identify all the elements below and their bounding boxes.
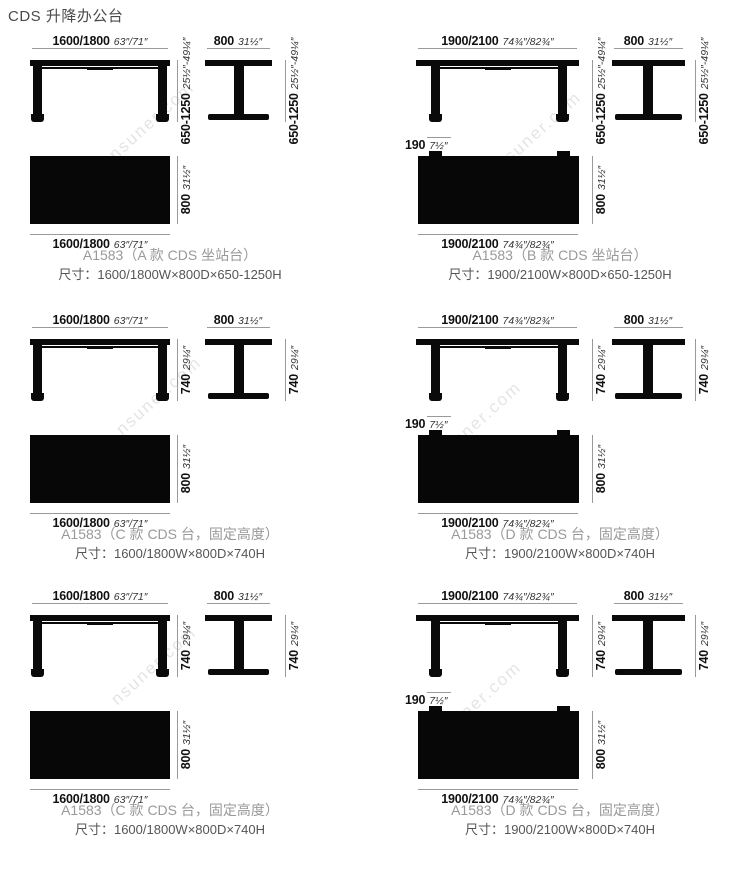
dimension-line bbox=[177, 156, 178, 224]
control-box bbox=[87, 622, 113, 625]
front-width-label: 1900/210074¾″/82¾″ bbox=[416, 589, 579, 602]
desk-leg-left bbox=[33, 66, 42, 116]
height-mm: 650-1250 bbox=[697, 93, 711, 144]
desk-leg-right bbox=[158, 345, 167, 395]
size-spec: 尺寸：1900/2100W×800D×650-1250H bbox=[410, 267, 710, 282]
dimension-line bbox=[427, 692, 451, 693]
desk-leg-left bbox=[431, 621, 440, 671]
panel-a-sit-stand: 1600/180063″/71″ 650-125025½″-49¼″ 80031… bbox=[30, 34, 375, 290]
overhang-mm: 190 bbox=[405, 138, 425, 152]
height-inches: 29¼″ bbox=[289, 622, 301, 646]
height-inches: 25½″-49¼″ bbox=[699, 37, 711, 89]
control-box bbox=[485, 346, 511, 349]
depth-label: 80031½″ bbox=[603, 589, 693, 602]
plan-leg-tab-left bbox=[429, 151, 442, 157]
front-width-label: 1900/210074¾″/82¾″ bbox=[416, 313, 579, 326]
height-inches: 29¼″ bbox=[699, 622, 711, 646]
dimension-line bbox=[592, 156, 593, 224]
desk-leg-right bbox=[558, 66, 567, 116]
depth-mm: 800 bbox=[179, 749, 193, 769]
desk-foot-left bbox=[31, 114, 44, 122]
height-inches: 29¼″ bbox=[699, 346, 711, 370]
dimension-line bbox=[418, 48, 577, 49]
depth-mm: 800 bbox=[624, 34, 644, 48]
panel-c-fixed: 1600/180063″/71″ 74029¼″ 80031½″ 74029¼″… bbox=[30, 313, 375, 569]
depth-inches: 31½″ bbox=[596, 721, 608, 745]
model-caption: A1583（D 款 CDS 台，固定高度） bbox=[410, 802, 710, 818]
dimension-line bbox=[30, 513, 170, 514]
desk-foot-right bbox=[156, 393, 169, 401]
size-spec: 尺寸：1900/2100W×800D×740H bbox=[410, 822, 710, 837]
height-mm: 740 bbox=[594, 374, 608, 394]
plan-leg-tab-left bbox=[429, 706, 442, 712]
depth-inches: 31½″ bbox=[648, 36, 672, 48]
height-inches: 25½″-49¼″ bbox=[181, 37, 193, 89]
size-spec: 尺寸：1600/1800W×800D×740H bbox=[20, 546, 320, 561]
desk-plan-view bbox=[418, 435, 579, 503]
height-inches: 29¼″ bbox=[181, 346, 193, 370]
width-mm: 1600/1800 bbox=[52, 313, 109, 327]
page-title: CDS 升降办公台 bbox=[8, 5, 123, 26]
depth-inches: 31½″ bbox=[238, 591, 262, 603]
height-inches: 25½″-49¼″ bbox=[289, 37, 301, 89]
depth-mm: 800 bbox=[594, 749, 608, 769]
dimension-line bbox=[418, 327, 577, 328]
desk-foot-side bbox=[615, 393, 682, 399]
width-mm: 1900/2100 bbox=[441, 313, 498, 327]
depth-label: 80031½″ bbox=[594, 685, 608, 805]
dimension-line bbox=[592, 711, 593, 779]
front-width-label: 1600/180063″/71″ bbox=[30, 589, 170, 602]
panel-d-fixed: 1900/210074¾″/82¾″ 74029¼″ 80031½″ 74029… bbox=[405, 313, 750, 569]
dimension-line bbox=[418, 789, 578, 790]
height-mm: 740 bbox=[287, 650, 301, 670]
depth-mm: 800 bbox=[624, 313, 644, 327]
dimension-line bbox=[207, 48, 270, 49]
desk-plan-view bbox=[30, 435, 170, 503]
height-mm: 740 bbox=[594, 650, 608, 670]
height-label: 74029¼″ bbox=[287, 586, 301, 706]
spec-sheet-page: CDS 升降办公台 nsuner.com nsuner.com nsuner.c… bbox=[0, 0, 750, 887]
desk-foot-right bbox=[156, 669, 169, 677]
dimension-line bbox=[592, 60, 593, 122]
plan-leg-tab-right bbox=[557, 430, 570, 436]
dimension-line bbox=[695, 615, 696, 677]
size-spec: 尺寸：1600/1800W×800D×740H bbox=[20, 822, 320, 837]
height-label: 650-125025½″-49¼″ bbox=[287, 31, 301, 151]
depth-mm: 800 bbox=[594, 473, 608, 493]
dimension-line bbox=[177, 60, 178, 122]
model-caption: A1583（C 款 CDS 台，固定高度） bbox=[20, 802, 320, 818]
control-box bbox=[87, 346, 113, 349]
height-mm: 740 bbox=[697, 650, 711, 670]
width-mm: 1600/1800 bbox=[52, 589, 109, 603]
model-caption: A1583（A 款 CDS 坐站台） bbox=[20, 247, 320, 263]
dimension-line bbox=[427, 137, 451, 138]
height-label: 650-125025½″-49¼″ bbox=[697, 31, 711, 151]
dimension-line bbox=[177, 711, 178, 779]
dimension-line bbox=[32, 48, 168, 49]
desk-foot-left bbox=[429, 393, 442, 401]
model-caption: A1583（D 款 CDS 台，固定高度） bbox=[410, 526, 710, 542]
depth-inches: 31½″ bbox=[181, 166, 193, 190]
dimension-line bbox=[592, 435, 593, 503]
height-inches: 29¼″ bbox=[596, 622, 608, 646]
depth-label: 80031½″ bbox=[193, 34, 283, 47]
width-inches: 74¾″/82¾″ bbox=[503, 315, 554, 327]
desk-foot-side bbox=[208, 114, 269, 120]
depth-inches: 31½″ bbox=[181, 445, 193, 469]
depth-label: 80031½″ bbox=[179, 409, 193, 529]
desk-leg-right bbox=[158, 66, 167, 116]
desk-leg-left bbox=[33, 621, 42, 671]
width-mm: 1900/2100 bbox=[441, 589, 498, 603]
dimension-line bbox=[427, 416, 451, 417]
desk-foot-left bbox=[429, 114, 442, 122]
depth-mm: 800 bbox=[214, 34, 234, 48]
plan-leg-tab-left bbox=[429, 430, 442, 436]
height-label: 74029¼″ bbox=[287, 310, 301, 430]
dimension-line bbox=[695, 60, 696, 122]
dimension-line bbox=[207, 327, 270, 328]
dimension-line bbox=[614, 48, 683, 49]
dimension-line bbox=[32, 327, 168, 328]
control-box bbox=[87, 67, 113, 70]
dimension-line bbox=[32, 603, 168, 604]
dimension-line bbox=[177, 435, 178, 503]
model-caption: A1583（C 款 CDS 台，固定高度） bbox=[20, 526, 320, 542]
size-spec: 尺寸：1900/2100W×800D×740H bbox=[410, 546, 710, 561]
desk-foot-side bbox=[615, 114, 682, 120]
depth-inches: 31½″ bbox=[238, 36, 262, 48]
desk-foot-left bbox=[31, 393, 44, 401]
width-inches: 63″/71″ bbox=[114, 315, 148, 327]
front-width-label: 1600/180063″/71″ bbox=[30, 313, 170, 326]
width-inches: 74¾″/82¾″ bbox=[503, 591, 554, 603]
width-inches: 63″/71″ bbox=[114, 36, 148, 48]
desk-foot-side bbox=[208, 669, 269, 675]
dimension-line bbox=[418, 234, 578, 235]
depth-label: 80031½″ bbox=[603, 313, 693, 326]
desk-column-side bbox=[643, 621, 653, 669]
desk-foot-left bbox=[31, 669, 44, 677]
depth-inches: 31½″ bbox=[238, 315, 262, 327]
desk-plan-view bbox=[30, 711, 170, 779]
depth-label: 80031½″ bbox=[179, 130, 193, 250]
depth-inches: 31½″ bbox=[181, 721, 193, 745]
overhang-dimension: 1907½″ bbox=[405, 693, 448, 707]
width-mm: 1900/2100 bbox=[441, 34, 498, 48]
plan-leg-tab-right bbox=[557, 151, 570, 157]
desk-top-front bbox=[30, 60, 170, 66]
dimension-line bbox=[285, 339, 286, 401]
dimension-line bbox=[614, 603, 683, 604]
depth-mm: 800 bbox=[179, 473, 193, 493]
overhang-dimension: 1907½″ bbox=[405, 417, 448, 431]
dimension-line bbox=[30, 789, 170, 790]
desk-foot-side bbox=[615, 669, 682, 675]
dimension-line bbox=[177, 339, 178, 401]
dimension-line bbox=[207, 603, 270, 604]
height-inches: 29¼″ bbox=[289, 346, 301, 370]
desk-top-front bbox=[30, 339, 170, 345]
desk-foot-right bbox=[156, 114, 169, 122]
desk-column-side bbox=[643, 66, 653, 114]
depth-inches: 31½″ bbox=[648, 591, 672, 603]
desk-top-front bbox=[416, 60, 579, 66]
dimension-line bbox=[418, 603, 577, 604]
desk-column-side bbox=[234, 345, 244, 393]
desk-top-front bbox=[30, 615, 170, 621]
desk-foot-left bbox=[429, 669, 442, 677]
dimension-line bbox=[592, 615, 593, 677]
depth-label: 80031½″ bbox=[193, 589, 283, 602]
depth-mm: 800 bbox=[624, 589, 644, 603]
depth-mm: 800 bbox=[214, 589, 234, 603]
depth-label: 80031½″ bbox=[594, 130, 608, 250]
dimension-line bbox=[285, 60, 286, 122]
desk-column-side bbox=[234, 621, 244, 669]
depth-label: 80031½″ bbox=[193, 313, 283, 326]
depth-label: 80031½″ bbox=[179, 685, 193, 805]
desk-leg-right bbox=[158, 621, 167, 671]
overhang-mm: 190 bbox=[405, 693, 425, 707]
height-label: 74029¼″ bbox=[697, 586, 711, 706]
size-spec: 尺寸：1600/1800W×800D×650-1250H bbox=[20, 267, 320, 282]
desk-foot-right bbox=[556, 114, 569, 122]
width-mm: 1600/1800 bbox=[52, 34, 109, 48]
front-width-label: 1900/210074¾″/82¾″ bbox=[416, 34, 579, 47]
desk-foot-right bbox=[556, 669, 569, 677]
width-inches: 63″/71″ bbox=[114, 591, 148, 603]
desk-plan-view bbox=[418, 711, 579, 779]
desk-leg-left bbox=[33, 345, 42, 395]
depth-inches: 31½″ bbox=[596, 166, 608, 190]
panel-e-fixed: 1600/180063″/71″ 74029¼″ 80031½″ 74029¼″… bbox=[30, 589, 375, 845]
control-box bbox=[485, 67, 511, 70]
desk-column-side bbox=[643, 345, 653, 393]
dimension-line bbox=[177, 615, 178, 677]
dimension-line bbox=[285, 615, 286, 677]
plan-leg-tab-right bbox=[557, 706, 570, 712]
dimension-line bbox=[592, 339, 593, 401]
depth-inches: 31½″ bbox=[648, 315, 672, 327]
width-inches: 74¾″/82¾″ bbox=[503, 36, 554, 48]
desk-leg-right bbox=[558, 345, 567, 395]
desk-leg-right bbox=[558, 621, 567, 671]
model-caption: A1583（B 款 CDS 坐站台） bbox=[410, 247, 710, 263]
height-mm: 740 bbox=[179, 374, 193, 394]
overhang-mm: 190 bbox=[405, 417, 425, 431]
depth-label: 80031½″ bbox=[594, 409, 608, 529]
desk-top-front bbox=[416, 615, 579, 621]
desk-plan-view bbox=[30, 156, 170, 224]
desk-top-front bbox=[416, 339, 579, 345]
depth-mm: 800 bbox=[594, 194, 608, 214]
height-label: 74029¼″ bbox=[697, 310, 711, 430]
height-mm: 740 bbox=[287, 374, 301, 394]
dimension-line bbox=[695, 339, 696, 401]
panel-f-fixed: 1900/210074¾″/82¾″ 74029¼″ 80031½″ 74029… bbox=[405, 589, 750, 845]
desk-leg-left bbox=[431, 66, 440, 116]
panel-b-sit-stand: 1900/210074¾″/82¾″ 650-125025½″-49¼″ 800… bbox=[405, 34, 750, 290]
depth-label: 80031½″ bbox=[603, 34, 693, 47]
desk-foot-side bbox=[208, 393, 269, 399]
dimension-line bbox=[614, 327, 683, 328]
height-inches: 29¼″ bbox=[181, 622, 193, 646]
dimension-line bbox=[418, 513, 578, 514]
desk-column-side bbox=[234, 66, 244, 114]
height-inches: 29¼″ bbox=[596, 346, 608, 370]
depth-mm: 800 bbox=[214, 313, 234, 327]
desk-leg-left bbox=[431, 345, 440, 395]
desk-plan-view bbox=[418, 156, 579, 224]
depth-mm: 800 bbox=[179, 194, 193, 214]
height-mm: 650-1250 bbox=[287, 93, 301, 144]
front-width-label: 1600/180063″/71″ bbox=[30, 34, 170, 47]
height-mm: 740 bbox=[697, 374, 711, 394]
height-mm: 740 bbox=[179, 650, 193, 670]
control-box bbox=[485, 622, 511, 625]
dimension-line bbox=[30, 234, 170, 235]
depth-inches: 31½″ bbox=[596, 445, 608, 469]
desk-foot-right bbox=[556, 393, 569, 401]
overhang-dimension: 1907½″ bbox=[405, 138, 448, 152]
